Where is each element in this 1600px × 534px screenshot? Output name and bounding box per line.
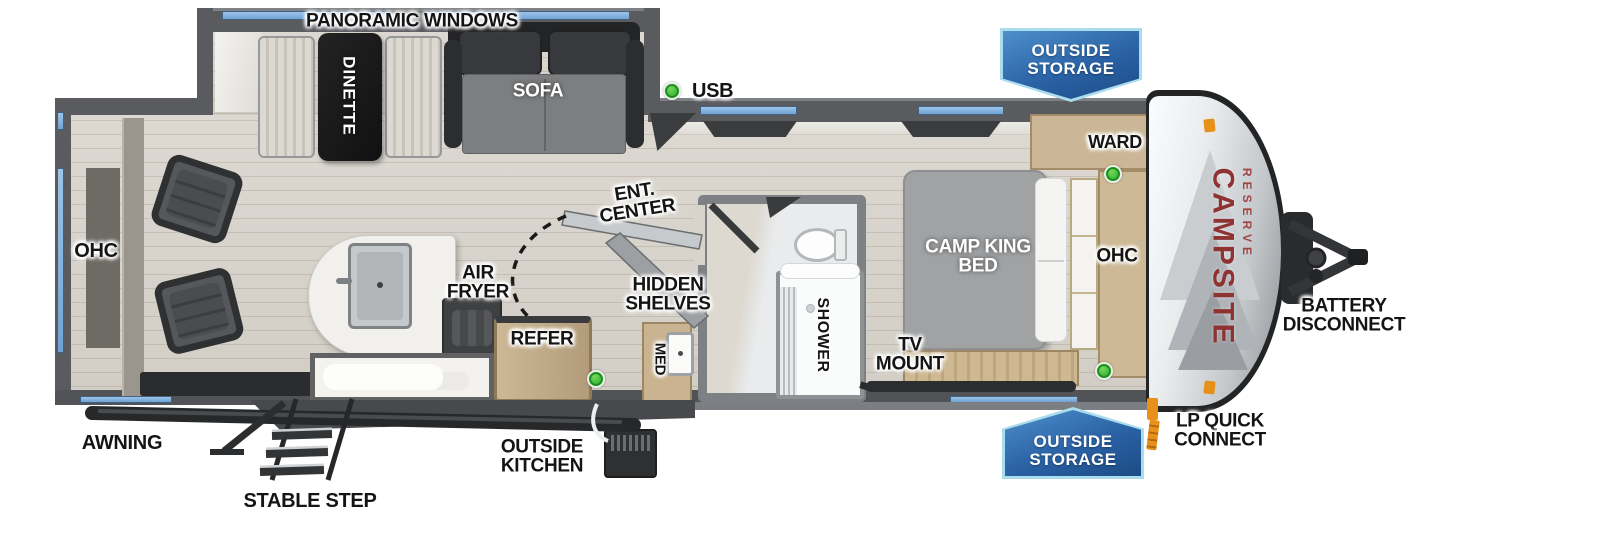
brand-series-label: RESERVE — [1241, 168, 1253, 260]
awning-label: AWNING — [82, 433, 162, 453]
med-label: MED — [652, 343, 667, 375]
air-fryer-label: AIR FRYER — [443, 264, 513, 303]
sofa-label: SOFA — [513, 81, 564, 100]
camp-king-bed-label: CAMP KING BED — [923, 238, 1033, 277]
refer-label: REFER — [511, 329, 574, 348]
outside-kitchen-label: OUTSIDE KITCHEN — [492, 438, 592, 477]
tongue-jack — [1307, 249, 1325, 267]
ward-label: WARD — [1088, 133, 1142, 151]
shower-label: SHOWER — [814, 298, 830, 373]
bathroom-door — [711, 205, 757, 251]
lp-quick-connect-label: LP QUICK CONNECT — [1163, 412, 1278, 451]
step-tread — [266, 452, 328, 454]
usb-dot-icon — [1104, 165, 1122, 183]
stable-step-label: STABLE STEP — [243, 491, 376, 511]
usb-dot-icon — [587, 370, 605, 388]
ohc-rear-label: OHC — [74, 241, 118, 261]
usb-legend-label: USB — [692, 81, 733, 101]
detail-overlay — [0, 0, 1600, 534]
banner-label: OUTSIDE STORAGE — [1002, 433, 1144, 470]
tv-mount-label: TV MOUNT — [870, 336, 950, 375]
dinette-label: DINETTE — [340, 56, 357, 136]
ohc-front-label: OHC — [1096, 246, 1137, 265]
battery-disconnect-label: BATTERY DISCONNECT — [1274, 297, 1414, 336]
usb-dot-icon — [1095, 362, 1113, 380]
outside-storage-banner-bottom: OUTSIDE STORAGE — [1002, 407, 1144, 479]
bathroom-corner-wall — [766, 197, 801, 218]
step-tread — [260, 470, 324, 472]
step-tread — [272, 434, 332, 436]
floorplan-canvas: OUTSIDE STORAGE OUTSIDE STORAGE PANORAMI… — [0, 0, 1600, 534]
hitch-coupler — [1348, 249, 1368, 265]
panoramic-windows-label: PANORAMIC WINDOWS — [306, 11, 518, 30]
brand-name-label: CAMPSITE — [1207, 167, 1238, 346]
usb-dot-icon — [663, 82, 681, 100]
banner-label: OUTSIDE STORAGE — [1000, 42, 1142, 79]
hidden-shelves-label: HIDDEN SHELVES — [618, 276, 718, 315]
jack-wheel — [1309, 269, 1323, 283]
outside-storage-banner-top: OUTSIDE STORAGE — [1000, 28, 1142, 102]
tv-swing-arc — [513, 216, 566, 320]
